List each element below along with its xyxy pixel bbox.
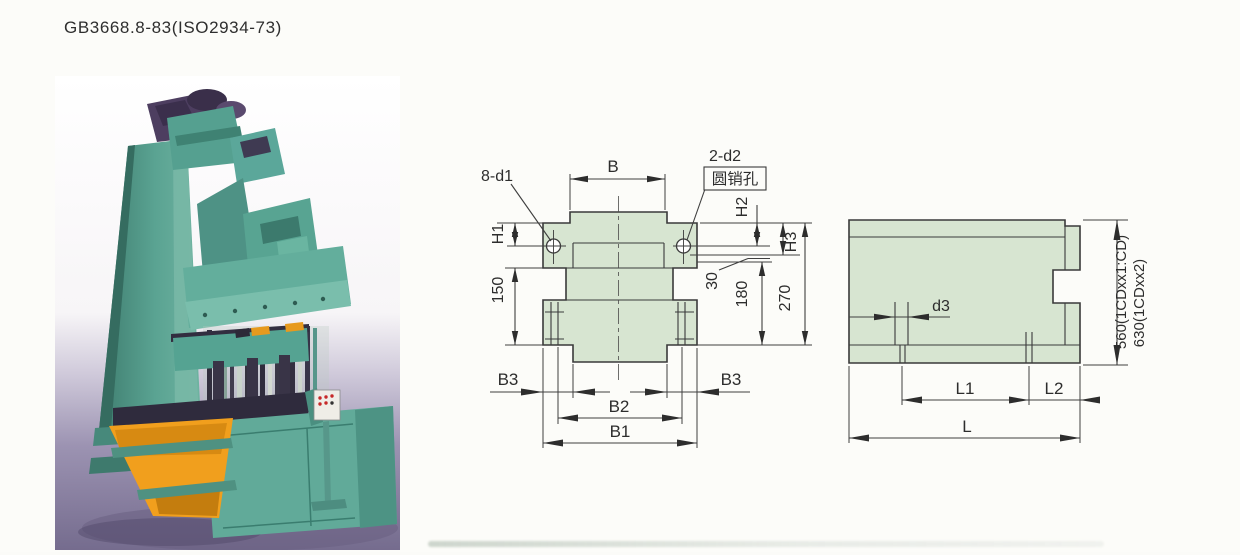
front-view-drawing: B 8-d1 2-d2 圆销孔 H1 150 H2 H3 30 180 270 …	[481, 148, 812, 448]
dim-label-h2: H2	[734, 197, 751, 218]
page: GB3668.8-83(ISO2934-73)	[0, 0, 1240, 552]
dim-label-180: 180	[734, 281, 751, 308]
dim-label-h1: H1	[490, 224, 507, 245]
technical-drawings: B 8-d1 2-d2 圆销孔 H1 150 H2 H3 30 180 270 …	[0, 0, 1240, 552]
dim-label-b3-right: B3	[721, 370, 742, 389]
scan-artifact-strip	[428, 541, 1104, 547]
dim-label-2-d2: 2-d2	[709, 148, 741, 165]
dim-label-height-model1: 560(1CDxx1:CD)	[1113, 235, 1130, 349]
pin-hole-note: 圆销孔	[712, 170, 759, 188]
dim-label-height-model2: 630(1CDxx2)	[1131, 259, 1148, 347]
dim-label-l2: L2	[1045, 379, 1064, 398]
dim-label-b: B	[607, 157, 618, 176]
dim-label-8-d1: 8-d1	[481, 168, 513, 185]
dim-label-b2: B2	[609, 397, 630, 416]
dim-label-l: L	[962, 417, 971, 436]
dim-label-270: 270	[777, 285, 794, 312]
dim-label-b1: B1	[610, 422, 631, 441]
dim-label-30: 30	[704, 272, 721, 290]
side-view-drawing: d3 L1 L2 L 560(1CDxx1:CD) 630(1CDxx2)	[849, 220, 1148, 443]
dim-label-l1: L1	[956, 379, 975, 398]
dim-label-150: 150	[490, 277, 507, 304]
dim-label-h3: H3	[783, 232, 800, 253]
slide-front-outline	[543, 212, 697, 362]
dim-label-b3-left: B3	[498, 370, 519, 389]
dim-label-d3: d3	[932, 298, 950, 315]
slide-side-outline	[849, 220, 1080, 363]
